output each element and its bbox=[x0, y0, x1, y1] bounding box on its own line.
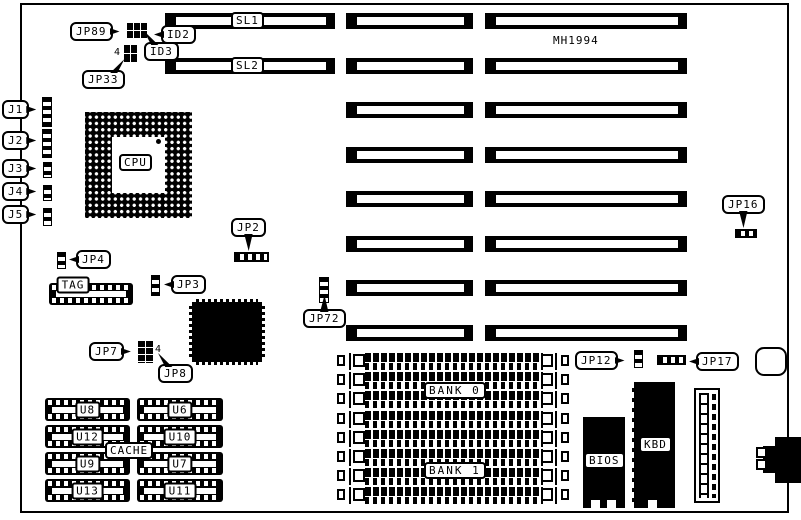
bus-slot-segment bbox=[485, 236, 687, 252]
j3-pin-header bbox=[43, 162, 52, 178]
simm-post bbox=[555, 449, 557, 466]
cache-chip: U13 bbox=[45, 479, 130, 502]
din-pin bbox=[756, 447, 767, 458]
chipset-qfp bbox=[192, 302, 262, 362]
jp4-jumper bbox=[57, 252, 66, 269]
simm-hole bbox=[561, 355, 569, 366]
callout-j4: J4 bbox=[2, 182, 29, 201]
kbd-label: KBD bbox=[639, 436, 672, 453]
chip-label: U13 bbox=[71, 482, 104, 499]
bus-slot-segment bbox=[346, 13, 473, 29]
simm-hole bbox=[561, 470, 569, 481]
pin1-annotation: 4 bbox=[114, 48, 120, 58]
simm-post bbox=[349, 487, 351, 504]
cpu-label: CPU bbox=[119, 154, 152, 171]
callout-jp2: JP2 bbox=[231, 218, 266, 237]
callout-jp4: JP4 bbox=[76, 250, 111, 269]
slot-label-sl1: SL1 bbox=[231, 12, 264, 29]
simm-post bbox=[555, 372, 557, 389]
simm-clip bbox=[353, 373, 365, 386]
j4-pin-header bbox=[43, 185, 52, 201]
simm-clip bbox=[541, 488, 553, 501]
simm-post bbox=[555, 411, 557, 428]
bus-slot-segment bbox=[346, 147, 473, 163]
bus-slot-segment bbox=[485, 102, 687, 118]
bus-slot-segment bbox=[485, 147, 687, 163]
callout-j5: J5 bbox=[2, 205, 29, 224]
chip-label: U10 bbox=[164, 428, 197, 445]
bus-slot-segment bbox=[346, 102, 473, 118]
board-model-text: MH1994 bbox=[553, 36, 599, 46]
simm-hole bbox=[337, 413, 345, 424]
simm-clip bbox=[353, 431, 365, 444]
chip-label: U7 bbox=[167, 455, 192, 472]
chip-notch bbox=[591, 500, 600, 508]
bus-slot-segment bbox=[485, 280, 687, 296]
chip-label: U11 bbox=[164, 482, 197, 499]
simm-post bbox=[349, 411, 351, 428]
simm-clip bbox=[541, 412, 553, 425]
bus-slot-segment bbox=[346, 236, 473, 252]
jp3-jumper bbox=[151, 275, 160, 296]
bios-label: BIOS bbox=[584, 452, 625, 469]
jp7-jp8-jumper-block bbox=[138, 341, 154, 363]
bus-slot-segment bbox=[485, 191, 687, 207]
simm-hole bbox=[337, 470, 345, 481]
bus-slot-segment bbox=[485, 13, 687, 29]
simm-hole bbox=[561, 413, 569, 424]
bus-slot-segment bbox=[346, 280, 473, 296]
simm-clip bbox=[541, 431, 553, 444]
simm-body bbox=[365, 353, 543, 370]
callout-jp72: JP72 bbox=[303, 309, 346, 328]
simm-post bbox=[349, 372, 351, 389]
bus-slot-segment bbox=[346, 58, 473, 74]
simm-post bbox=[555, 391, 557, 408]
simm-hole bbox=[561, 489, 569, 500]
simm-body bbox=[365, 430, 543, 447]
simm-clip bbox=[541, 354, 553, 367]
din-connector bbox=[775, 437, 801, 483]
simm-post bbox=[349, 449, 351, 466]
chip-label: U8 bbox=[75, 401, 100, 418]
callout-id3: ID3 bbox=[144, 42, 179, 61]
simm-body bbox=[365, 411, 543, 428]
tag-label: TAG bbox=[57, 277, 90, 294]
jp2-jumper bbox=[234, 252, 269, 262]
cache-chip: U6 bbox=[137, 398, 223, 421]
simm-clip bbox=[353, 392, 365, 405]
bus-slot-segment bbox=[346, 325, 473, 341]
simm-post bbox=[555, 487, 557, 504]
simm-clip bbox=[541, 469, 553, 482]
callout-j3: J3 bbox=[2, 159, 29, 178]
simm-clip bbox=[353, 488, 365, 501]
simm-hole bbox=[337, 451, 345, 462]
callout-j1: J1 bbox=[2, 100, 29, 119]
simm-clip bbox=[541, 373, 553, 386]
simm-hole bbox=[337, 432, 345, 443]
cache-chip: U11 bbox=[137, 479, 223, 502]
tag-sram-chip: TAG bbox=[49, 283, 133, 305]
bus-slot-segment bbox=[485, 325, 687, 341]
j1-pin-header bbox=[42, 97, 52, 127]
simm-clip bbox=[541, 450, 553, 463]
simm-post bbox=[349, 468, 351, 485]
simm-socket bbox=[337, 430, 569, 447]
battery-outline bbox=[755, 347, 787, 376]
simm-socket bbox=[337, 487, 569, 504]
qfp-pins-right bbox=[262, 306, 265, 358]
chip-label: U12 bbox=[71, 428, 104, 445]
power-connector bbox=[694, 388, 720, 503]
jp16-jumper bbox=[735, 229, 757, 238]
simm-post bbox=[555, 430, 557, 447]
simm-clip bbox=[353, 450, 365, 463]
bus-slot-segment bbox=[346, 191, 473, 207]
simm-hole bbox=[561, 451, 569, 462]
j5-pin-header bbox=[43, 208, 52, 226]
simm-hole bbox=[561, 393, 569, 404]
jp33-jumper-block bbox=[124, 45, 137, 63]
simm-clip bbox=[353, 469, 365, 482]
callout-jp12: JP12 bbox=[575, 351, 618, 370]
simm-socket bbox=[337, 353, 569, 370]
callout-jp33: JP33 bbox=[82, 70, 125, 89]
callout-jp17: JP17 bbox=[696, 352, 739, 371]
simm-clip bbox=[541, 392, 553, 405]
simm-post bbox=[349, 430, 351, 447]
bank1-label: BANK 1 bbox=[424, 462, 486, 479]
pin4-annotation: 4 bbox=[155, 345, 161, 355]
qfp-pins-top bbox=[196, 299, 258, 302]
callout-jp16: JP16 bbox=[722, 195, 765, 214]
chip-label: U6 bbox=[167, 401, 192, 418]
qfp-pins-bottom bbox=[196, 362, 258, 365]
id-jumper-block bbox=[127, 23, 148, 38]
simm-post bbox=[555, 353, 557, 370]
chip-notch bbox=[648, 500, 657, 508]
simm-body bbox=[365, 487, 543, 504]
chip-notch bbox=[607, 500, 616, 508]
callout-jp3: JP3 bbox=[171, 275, 206, 294]
jp17-jumper bbox=[657, 355, 686, 365]
din-pin bbox=[756, 459, 767, 470]
simm-clip bbox=[353, 412, 365, 425]
callout-jp8: JP8 bbox=[158, 364, 193, 383]
j2-pin-header bbox=[42, 129, 52, 158]
simm-clip bbox=[353, 354, 365, 367]
simm-hole bbox=[561, 432, 569, 443]
cache-chip: U8 bbox=[45, 398, 130, 421]
bank0-label: BANK 0 bbox=[424, 382, 486, 399]
simm-post bbox=[349, 353, 351, 370]
jp12-jumper bbox=[634, 350, 643, 368]
callout-jp7: JP7 bbox=[89, 342, 124, 361]
simm-hole bbox=[337, 355, 345, 366]
chip-label: U9 bbox=[75, 455, 100, 472]
cpu-socket: CPU bbox=[85, 112, 192, 218]
cpu-pin1-dot bbox=[156, 139, 161, 144]
callout-j2: J2 bbox=[2, 131, 29, 150]
simm-post bbox=[555, 468, 557, 485]
power-pins-left bbox=[699, 393, 709, 498]
simm-hole bbox=[337, 393, 345, 404]
slot-label-sl2: SL2 bbox=[231, 57, 264, 74]
simm-socket bbox=[337, 411, 569, 428]
cache-label: CACHE bbox=[105, 442, 153, 459]
motherboard-diagram: SL1 SL2 MH1994 JP89 ID2 ID3 4 JP33 J1 J2… bbox=[0, 0, 801, 520]
power-pins-right bbox=[712, 394, 716, 498]
simm-post bbox=[349, 391, 351, 408]
simm-hole bbox=[337, 374, 345, 385]
simm-hole bbox=[561, 374, 569, 385]
bus-slot-segment bbox=[485, 58, 687, 74]
callout-jp89: JP89 bbox=[70, 22, 113, 41]
qfp-pins-left bbox=[189, 306, 192, 358]
simm-hole bbox=[337, 489, 345, 500]
